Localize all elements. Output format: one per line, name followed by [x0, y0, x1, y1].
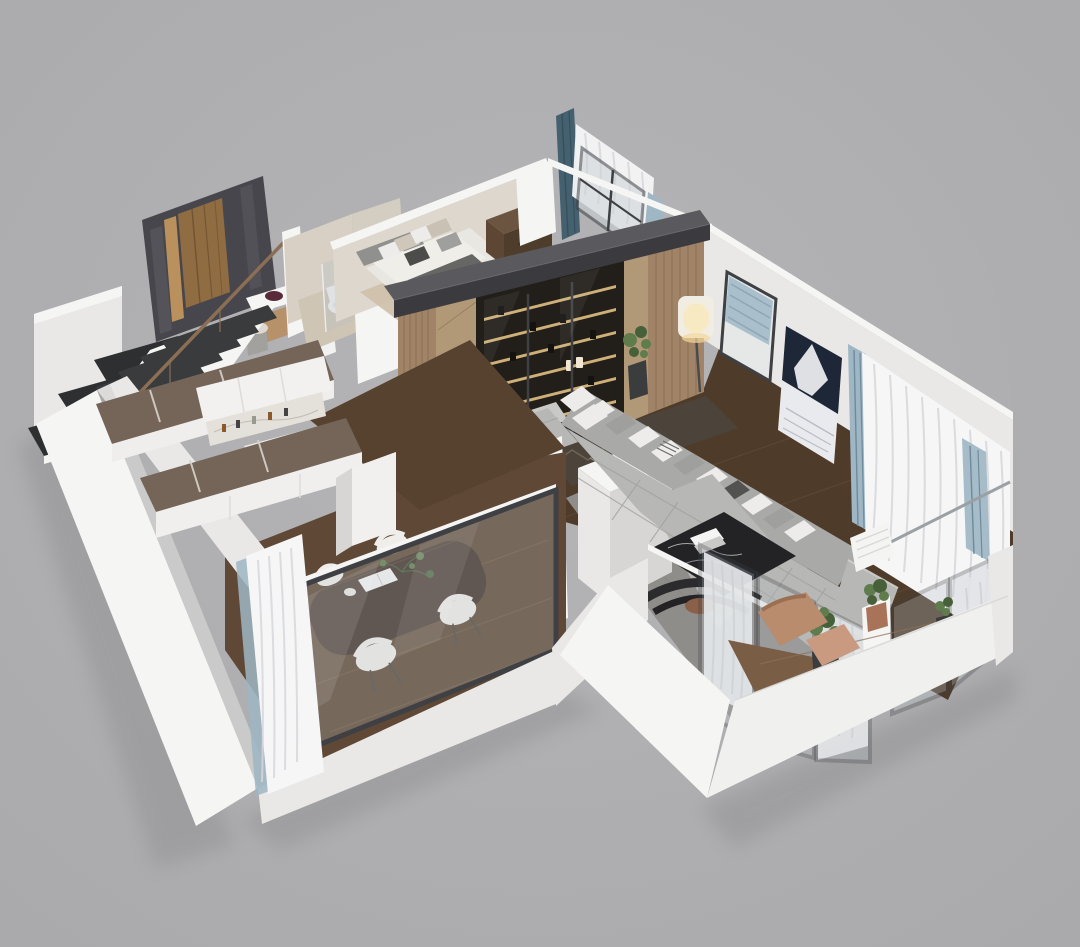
apartment-render-stage: Isometric 3D cutaway render of a modern …: [0, 0, 1080, 947]
floorplan-3d-render: Isometric 3D cutaway render of a modern …: [0, 0, 1080, 947]
entry-door: [178, 198, 230, 308]
plum-bowl: [265, 291, 283, 301]
